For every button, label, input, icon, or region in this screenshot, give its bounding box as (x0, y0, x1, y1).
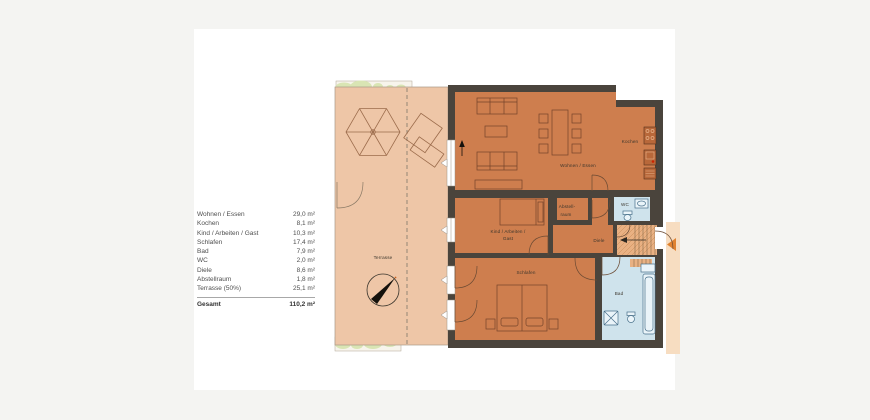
terrace-label: Terrasse (374, 255, 393, 260)
table-row: Wohnen / Essen29,0 m² (197, 210, 315, 219)
room-kind-arbeiten-gast (455, 198, 548, 253)
table-row: Diele8,6 m² (197, 266, 315, 275)
room-area: 2,0 m² (297, 256, 315, 265)
room-area: 29,0 m² (293, 210, 315, 219)
room-area: 7,9 m² (297, 247, 315, 256)
room-area: 1,8 m² (297, 275, 315, 284)
kind-label-line1: Kind / Arbeiten / (491, 229, 527, 234)
entry-door-opening (655, 227, 663, 249)
wc-label: WC (621, 202, 629, 207)
kind-label-line2: Gast (503, 236, 514, 241)
kochen-label: Kochen (622, 139, 639, 144)
table-separator (197, 297, 315, 298)
room-area: 25,1 m² (293, 284, 315, 293)
table-row: Schlafen17,4 m² (197, 238, 315, 247)
room-name: Kochen (197, 219, 219, 228)
area-table: Wohnen / Essen29,0 m² Kochen8,1 m² Kind … (197, 210, 315, 310)
room-area: 8,6 m² (297, 266, 315, 275)
table-row: Abstellraum1,8 m² (197, 275, 315, 284)
wohnen-essen-label: Wohnen / Essen (560, 163, 596, 168)
abstellraum-label-line2: raum (560, 212, 571, 217)
room-name: Abstellraum (197, 275, 231, 284)
room-area: 8,1 m² (297, 219, 315, 228)
total-label: Gesamt (197, 300, 221, 310)
diele-label: Diele (593, 238, 605, 243)
room-name: Schlafen (197, 238, 222, 247)
page: { "legend": { "rows": [ {"name": "Wohnen… (0, 0, 870, 420)
abstellraum-label-line1: Abstell- (559, 204, 576, 209)
total-area: 110,2 m² (289, 300, 315, 310)
double-bed (486, 285, 558, 331)
room-name: Wohnen / Essen (197, 210, 245, 219)
table-row: WC2,0 m² (197, 256, 315, 265)
terrace: Terrasse (335, 81, 448, 352)
table-row: Bad7,9 m² (197, 247, 315, 256)
kitchen-appliances (644, 127, 656, 179)
table-row: Kind / Arbeiten / Gast10,3 m² (197, 229, 315, 238)
room-name: Bad (197, 247, 209, 256)
room-area: 10,3 m² (293, 229, 315, 238)
table-row: Terrasse (50%)25,1 m² (197, 284, 315, 293)
schlafen-label: Schlafen (516, 270, 535, 275)
room-name: WC (197, 256, 208, 265)
floor-plan: Terrasse (330, 78, 680, 358)
room-area: 17,4 m² (293, 238, 315, 247)
bad-label: Bad (615, 291, 624, 296)
table-total-row: Gesamt110,2 m² (197, 300, 315, 310)
room-name: Terrasse (50%) (197, 284, 241, 293)
room-name: Kind / Arbeiten / Gast (197, 229, 258, 238)
table-row: Kochen8,1 m² (197, 219, 315, 228)
room-name: Diele (197, 266, 212, 275)
terrace-floor (335, 87, 448, 345)
